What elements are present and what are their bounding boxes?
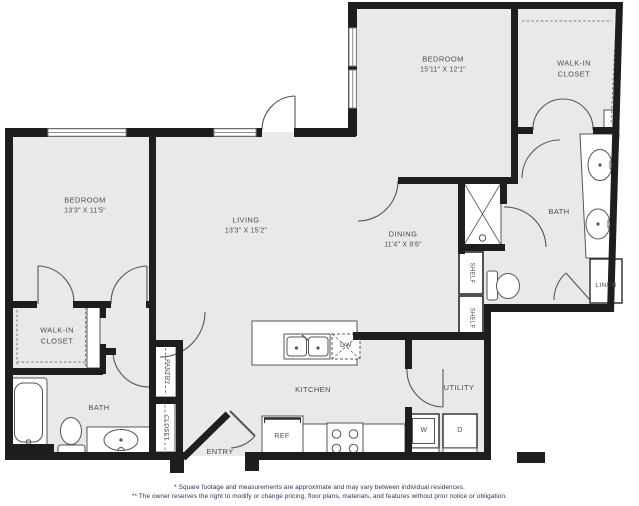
dining-dims: 11'4" X 8'6" [384, 240, 422, 251]
window-bedroom2-b [349, 70, 356, 108]
footnote-line-1: * Square footage and measurements are ap… [0, 484, 639, 493]
room-label-bedroom-2: BEDROOM 15'11" X 12'1" [420, 55, 466, 76]
bedroom-1-dims: 13'3" X 11'5" [64, 206, 106, 217]
room-label-bath-1: BATH [88, 403, 109, 414]
dining-name: DINING [384, 230, 422, 241]
bedroom-1-name: BEDROOM [64, 196, 106, 207]
room-label-living: LIVING 13'3" X 15'2" [225, 216, 267, 237]
refrigerator-label: REF [274, 432, 289, 443]
window-bedroom2-a [349, 28, 356, 66]
living-name: LIVING [225, 216, 267, 227]
room-label-bedroom-1: BEDROOM 13'3" X 11'5" [64, 196, 106, 217]
living-dims: 13'3" X 15'2" [225, 226, 267, 237]
room-label-entry: ENTRY [206, 447, 233, 458]
window-living [214, 129, 256, 136]
room-label-linen: LINEN [595, 281, 616, 292]
bedroom-2-dims: 15'11" X 12'1" [420, 65, 466, 76]
closet-2-line1: WALK-IN [557, 59, 591, 70]
floor-plan-page: BEDROOM 15'11" X 12'1" WALK-IN CLOSET BA… [0, 0, 639, 506]
dryer-label: D [457, 426, 462, 437]
closet-2-line2: CLOSET [557, 69, 591, 80]
room-label-walk-in-closet-1: WALK-IN CLOSET [40, 326, 74, 347]
room-label-pantry: PANTRY [161, 359, 172, 385]
dishwasher-label: DW [340, 341, 352, 352]
shower [464, 183, 501, 245]
room-label-closet-small: CLOSET [160, 415, 171, 441]
bedroom-2-name: BEDROOM [420, 55, 466, 66]
stove [327, 423, 363, 457]
windows [48, 28, 356, 136]
footnote-line-2: ** The owner reserves the right to modif… [0, 493, 639, 502]
toilet-right [487, 271, 520, 300]
room-label-bath-2: BATH [548, 207, 569, 218]
closet-1-line1: WALK-IN [40, 326, 74, 337]
room-label-kitchen: KITCHEN [295, 385, 331, 396]
footnote-block: * Square footage and measurements are ap… [0, 484, 639, 501]
living-patio-door [262, 96, 295, 130]
room-label-dining: DINING 11'4" X 8'6" [384, 230, 422, 251]
room-label-utility: UTILITY [444, 383, 475, 394]
shelf-label-upper: SHELF [466, 263, 477, 284]
shelf-label-lower: SHELF [466, 308, 477, 329]
window-bedroom1 [48, 129, 126, 136]
washer-label: W [420, 426, 427, 437]
bathtub [10, 378, 47, 448]
room-label-walk-in-closet-2: WALK-IN CLOSET [557, 59, 591, 80]
closet-1-line2: CLOSET [40, 336, 74, 347]
